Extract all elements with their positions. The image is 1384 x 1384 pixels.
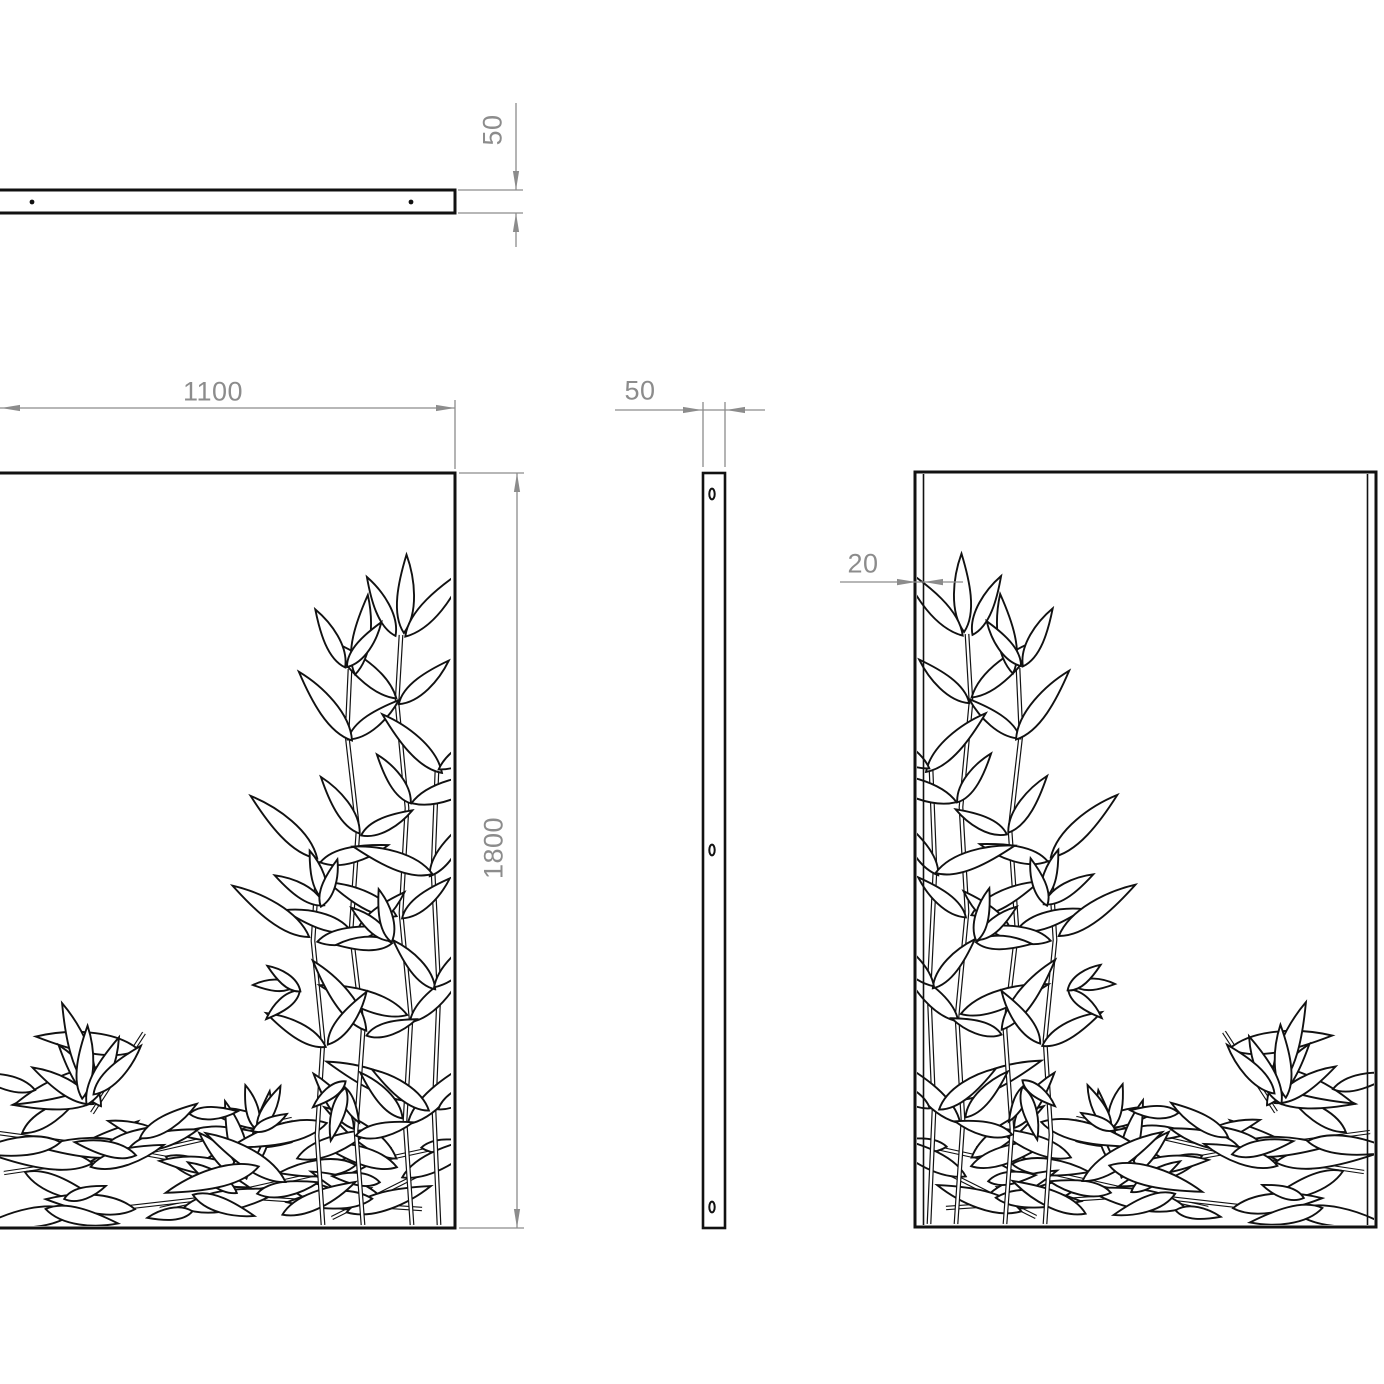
dim-label-top-thickness: 50 (478, 114, 509, 145)
dim-label-flange-depth: 20 (847, 549, 878, 580)
dim-label-side-depth: 50 (624, 376, 655, 407)
dim-label-panel-height: 1800 (479, 817, 510, 879)
top-view-hole-right (409, 200, 414, 205)
top-view (0, 190, 455, 213)
top-view-outline (0, 190, 455, 213)
dimension-flange-depth (840, 579, 963, 585)
side-view-slot-middle (709, 845, 714, 856)
top-view-hole-left (30, 200, 35, 205)
side-view-slot-top (709, 489, 714, 500)
side-view (703, 473, 725, 1228)
dimension-panel-width (0, 400, 455, 469)
side-view-slot-bottom (709, 1202, 714, 1213)
dim-label-panel-width: 1100 (183, 377, 243, 408)
technical-drawing-sheet: 50 1100 50 20 1800 (0, 0, 1384, 1384)
front-view (0, 473, 519, 1235)
back-view (849, 472, 1384, 1234)
panel-drawing (0, 0, 1384, 1384)
dimension-side-depth (615, 402, 765, 467)
